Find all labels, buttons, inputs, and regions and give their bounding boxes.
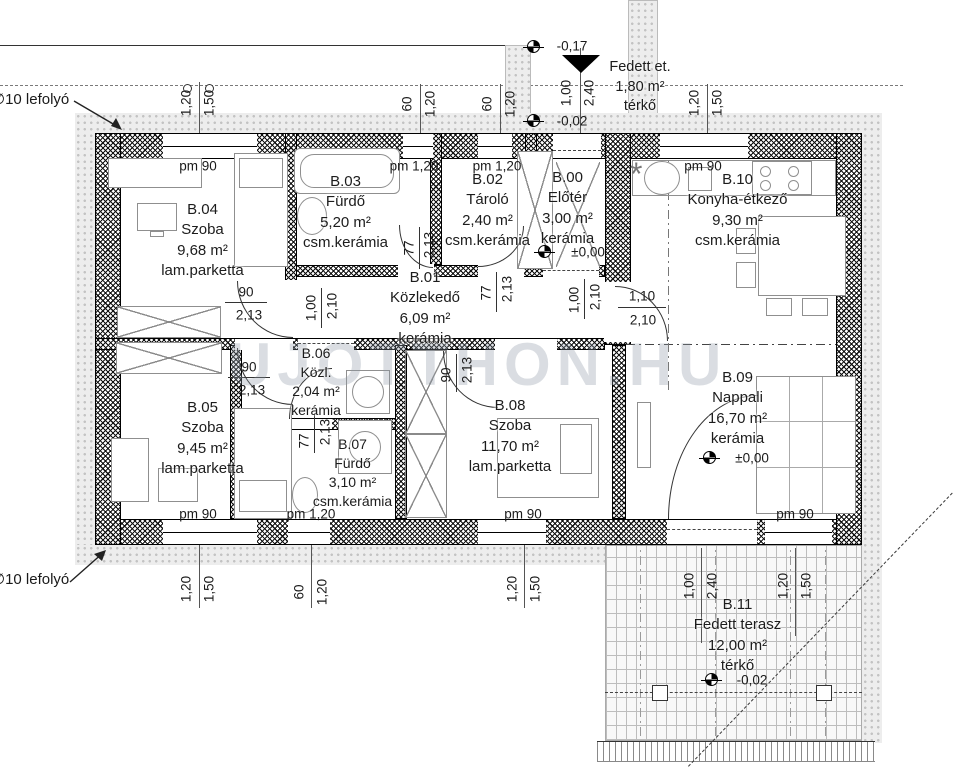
door-dim-label: 1,00 [304, 295, 319, 321]
room-area: 5,20 m² [288, 213, 403, 233]
window [478, 133, 512, 159]
level-marker [538, 245, 551, 258]
level-marker [527, 40, 540, 53]
door-dim-label: 1,10 [629, 289, 655, 304]
level-marker [705, 673, 718, 686]
room-floor: lam.parketta [130, 459, 275, 479]
door-dim-label: 1,00 [567, 287, 582, 313]
sill-height-label: pm 1,20 [390, 159, 439, 174]
drain-label: ∅10 lefolyó [0, 90, 69, 108]
entry-note: Fedett et. 1,80 m² térkő [595, 58, 685, 117]
room-label-b10: B.10 Konyha-étkező 9,30 m² csm.kerámia [650, 170, 825, 252]
room-label-b09: B.09 Nappali 16,70 m² kerámia [665, 368, 810, 450]
threshold-dashed [667, 529, 757, 530]
room-id: B.03 [288, 172, 403, 192]
room-area: 9,30 m² [650, 211, 825, 231]
dim-label: 1,00 [682, 573, 697, 599]
pillow [239, 480, 287, 512]
room-label-b06: B.06 Közl. 2,04 m² kerámia [275, 344, 357, 420]
room-id: B.04 [130, 200, 275, 220]
dim-label: 2,40 [705, 573, 720, 599]
dim-divider [419, 227, 420, 269]
window [288, 519, 330, 545]
room-name: Fedett terasz [650, 615, 825, 635]
room-floor: lam.parketta [130, 261, 275, 281]
room-area: 12,00 m² [650, 636, 825, 656]
level-value: -0,02 [557, 114, 588, 129]
room-floor: lam.parketta [440, 457, 580, 477]
dim-label: 60 [480, 96, 495, 111]
room-name: Közl. [275, 363, 357, 382]
room-label-b01: B.01 Közlekedő 6,09 m² kerámia [355, 268, 495, 350]
door-dim-label: 2,13 [236, 308, 262, 323]
terrace-post [816, 685, 832, 701]
room-name: Közlekedő [355, 288, 495, 308]
room-label-b11: B.11 Fedett terasz 12,00 m² térkő [650, 595, 825, 677]
room-area: 2,04 m² [275, 382, 357, 401]
floor-plan: UJOTTHON.HU B.04 Szoba 9,68 m² lam.parke… [0, 0, 967, 772]
entry-note-line: térkő [595, 97, 685, 117]
room-label-b05: B.05 Szoba 9,45 m² lam.parketta [130, 398, 275, 480]
insulation-band-bottom [75, 545, 605, 565]
room-area: 3,10 m² [300, 473, 405, 492]
pillow [239, 158, 283, 188]
door-dim-label: 2,13 [460, 357, 475, 383]
window [478, 519, 546, 545]
dim-divider [584, 279, 585, 319]
level-marker [527, 114, 540, 127]
dim-label: 2,40 [582, 80, 597, 106]
dim-line [707, 84, 708, 133]
room-id: B.01 [355, 268, 495, 288]
insulation-band-top [75, 113, 882, 133]
wardrobe [116, 342, 222, 374]
room-label-b07: B.07 Fürdő 3,10 m² csm.kerámia [300, 435, 405, 511]
room-name: Nappali [665, 388, 810, 408]
sill-height-label: pm 90 [179, 507, 217, 522]
window [765, 519, 832, 545]
dim-line [199, 545, 200, 608]
door-dim-label: 77 [297, 433, 312, 448]
tv-cabinet [637, 402, 651, 468]
leader-line [72, 95, 132, 137]
dim-label: 1,50 [528, 576, 543, 602]
chair [802, 298, 828, 316]
dim-label: 1,20 [315, 579, 330, 605]
dim-line [524, 545, 525, 608]
dim-divider [321, 288, 322, 328]
door-dim-label: 90 [241, 360, 256, 375]
dim-label: 60 [292, 584, 307, 599]
dim-label: 60 [400, 96, 415, 111]
room-id: B.06 [275, 344, 357, 363]
room-area: 9,68 m² [130, 241, 275, 261]
insulation-band-left [75, 113, 95, 565]
door-dim-label: 90 [238, 285, 253, 300]
chair [766, 298, 792, 316]
room-id: B.00 [520, 168, 615, 188]
room-area: 9,45 m² [130, 439, 275, 459]
room-floor: csm.kerámia [288, 233, 403, 253]
door-dim-label: 2,10 [630, 313, 656, 328]
sill-height-label: pm 1,20 [287, 507, 336, 522]
room-label-b08: B.08 Szoba 11,70 m² lam.parketta [440, 396, 580, 478]
level-value: ±0,00 [735, 451, 769, 466]
dim-label: 1,20 [503, 91, 518, 117]
window [163, 519, 257, 545]
level-value: ±0,00 [571, 245, 605, 260]
dim-label: 1,50 [799, 573, 814, 599]
door-dim-label: 90 [439, 367, 454, 382]
room-name: Fürdő [288, 192, 403, 212]
sill-height-label: pm 90 [179, 159, 217, 174]
room-floor: kerámia [275, 401, 357, 420]
insulation-band-right [862, 113, 882, 743]
terrace-door-opening [667, 520, 757, 544]
room-area: 11,70 m² [440, 437, 580, 457]
window [660, 133, 748, 159]
dim-divider [225, 302, 267, 303]
room-floor: csm.kerámia [650, 231, 825, 251]
dim-label: 1,20 [776, 573, 791, 599]
room-id: B.08 [440, 396, 580, 416]
terrace-footing [597, 741, 875, 762]
level-value: -0,17 [557, 39, 588, 54]
room-name: Szoba [440, 416, 580, 436]
room-name: Előtér [520, 188, 615, 208]
dim-line [500, 84, 501, 133]
dim-label: 1,50 [710, 90, 725, 116]
level-marker [703, 451, 716, 464]
threshold-dashed [543, 270, 599, 271]
terrace-joint-line [640, 548, 641, 736]
door-dim-label: 77 [402, 240, 417, 255]
drain-label: ∅10 lefolyó [0, 570, 69, 588]
window [403, 133, 433, 159]
dim-line [199, 82, 200, 133]
room-id: B.10 [650, 170, 825, 190]
dim-line [311, 545, 312, 608]
door-dim-label: 2,13 [422, 232, 437, 258]
room-label-b04: B.04 Szoba 9,68 m² lam.parketta [130, 200, 275, 282]
eave-line [0, 45, 506, 46]
dim-label: 1,20 [179, 576, 194, 602]
entry-door-opening [553, 134, 601, 158]
room-name: Fürdő [300, 454, 405, 473]
level-value: -0,02 [737, 673, 768, 688]
sill-height-label: pm 90 [504, 507, 542, 522]
entry-note-line: 1,80 m² [595, 78, 685, 98]
door-dim-label: 2,10 [588, 284, 603, 310]
boiler-symbol: * [630, 156, 642, 193]
sill-height-label: pm 90 [684, 159, 722, 174]
dim-line [420, 84, 421, 133]
dim-label: 1,20 [505, 576, 520, 602]
room-id: B.09 [665, 368, 810, 388]
door-dim-label: 2,13 [318, 419, 333, 445]
room-area: 6,09 m² [355, 309, 495, 329]
dim-label: 1,50 [202, 90, 217, 116]
dim-divider [496, 272, 497, 312]
sill-height-label: pm 1,20 [473, 159, 522, 174]
room-label-b03: B.03 Fürdő 5,20 m² csm.kerámia [288, 172, 403, 254]
entry-note-line: Fedett et. [595, 58, 685, 78]
terrace-joint-line [825, 548, 826, 736]
room-label-b00: B.00 Előtér 3,00 m² kerámia [520, 168, 615, 250]
room-name: Szoba [130, 220, 275, 240]
room-id: B.07 [300, 435, 405, 454]
door-dim-label: 2,13 [239, 383, 265, 398]
dim-label: 1,20 [179, 90, 194, 116]
leader-line [66, 545, 114, 587]
sill-height-label: pm 90 [776, 507, 814, 522]
dim-label: 1,20 [423, 91, 438, 117]
room-floor: kerámia [355, 329, 495, 349]
wardrobe [117, 306, 221, 338]
room-id: B.05 [130, 398, 275, 418]
room-name: Szoba [130, 418, 275, 438]
room-area: 3,00 m² [520, 209, 615, 229]
threshold-dashed [553, 150, 601, 151]
door-dim-label: 77 [479, 285, 494, 300]
dim-label: 1,00 [559, 80, 574, 106]
dim-label: 1,20 [687, 90, 702, 116]
room-area: 16,70 m² [665, 409, 810, 429]
chair [736, 262, 756, 288]
room-floor: kerámia [665, 429, 810, 449]
door-dim-label: 2,10 [325, 293, 340, 319]
dim-divider [618, 307, 666, 308]
room-name: Konyha-étkező [650, 190, 825, 210]
door-dim-label: 2,13 [500, 276, 515, 302]
roof-overhang-line [0, 85, 903, 86]
terrace-post [652, 685, 668, 701]
dim-label: 1,50 [202, 576, 217, 602]
